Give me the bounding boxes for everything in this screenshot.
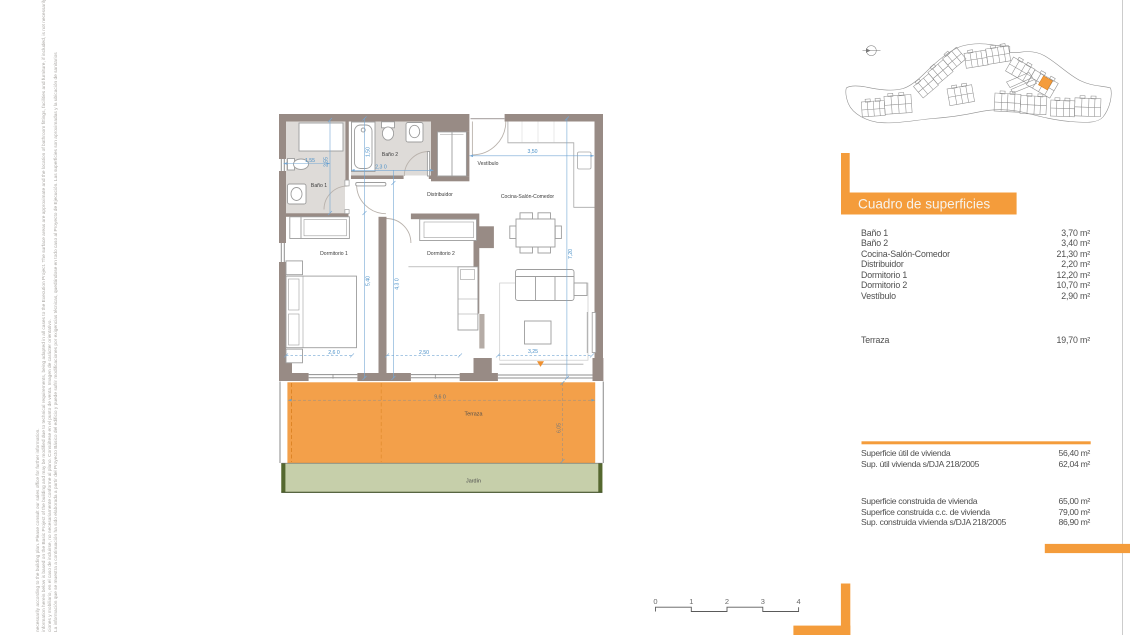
svg-text:3,25: 3,25 bbox=[528, 349, 538, 355]
svg-text:4,3 0: 4,3 0 bbox=[395, 278, 401, 290]
svg-text:1,50: 1,50 bbox=[366, 147, 372, 157]
svg-text:Baño 1: Baño 1 bbox=[311, 183, 327, 189]
svg-text:3: 3 bbox=[761, 597, 765, 606]
svg-text:3,50: 3,50 bbox=[527, 149, 537, 155]
svg-text:Vestíbulo: Vestíbulo bbox=[478, 161, 499, 167]
svg-text:2,50: 2,50 bbox=[419, 350, 429, 356]
svg-text:Dormitorio 2: Dormitorio 2 bbox=[427, 251, 455, 257]
svg-text:2,3 0: 2,3 0 bbox=[375, 164, 387, 170]
svg-text:1: 1 bbox=[689, 597, 693, 606]
svg-text:Cuadro de superficies: Cuadro de superficies bbox=[858, 197, 990, 212]
svg-text:2,6 0: 2,6 0 bbox=[328, 350, 340, 356]
svg-text:Cocina-Salón-Comedor: Cocina-Salón-Comedor bbox=[501, 194, 555, 200]
svg-text:Distribuidor: Distribuidor bbox=[427, 192, 453, 198]
svg-text:Dormitorio 1: Dormitorio 1 bbox=[320, 251, 348, 257]
svg-text:Terraza: Terraza bbox=[465, 411, 483, 417]
svg-text:7,20: 7,20 bbox=[568, 249, 574, 259]
svg-text:Jardín: Jardín bbox=[466, 479, 481, 485]
svg-text:2,55: 2,55 bbox=[324, 157, 330, 167]
svg-text:6,05: 6,05 bbox=[557, 423, 563, 433]
svg-text:5,40: 5,40 bbox=[366, 276, 372, 286]
svg-text:2: 2 bbox=[725, 597, 729, 606]
svg-text:1,55: 1,55 bbox=[305, 158, 315, 164]
svg-text:0: 0 bbox=[653, 597, 657, 606]
svg-text:9,6 0: 9,6 0 bbox=[434, 394, 446, 400]
svg-text:4: 4 bbox=[797, 597, 801, 606]
svg-text:Baño 2: Baño 2 bbox=[382, 152, 398, 158]
